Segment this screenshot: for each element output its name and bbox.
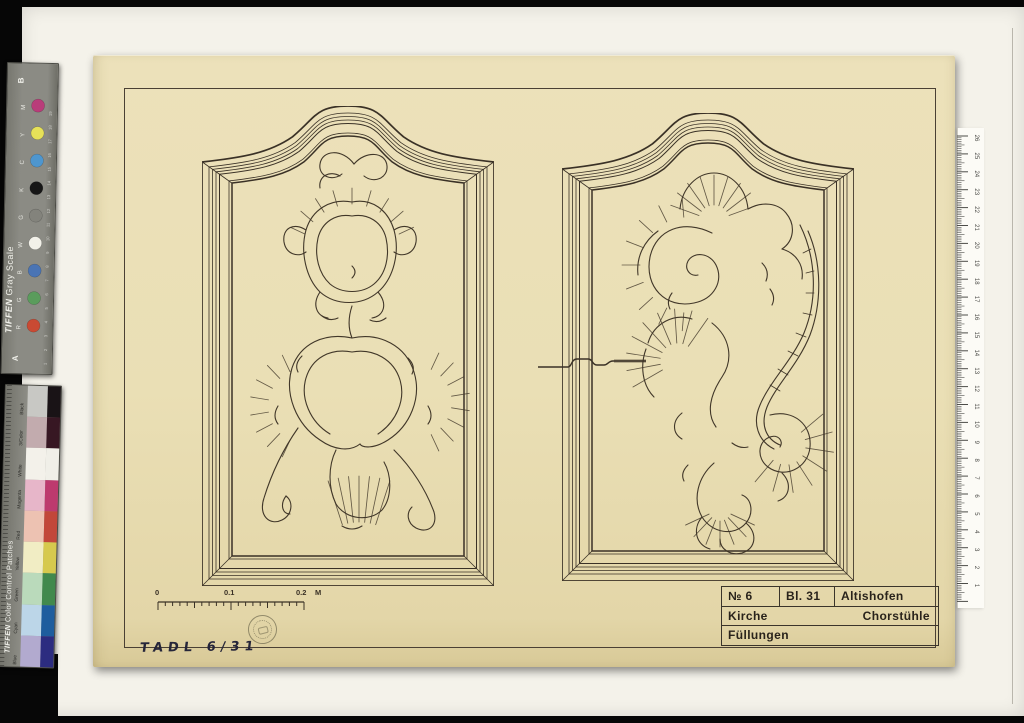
svg-text:6: 6 bbox=[973, 494, 979, 498]
molding-profile-mark bbox=[538, 351, 648, 375]
svg-text:18: 18 bbox=[48, 125, 53, 130]
svg-text:Y: Y bbox=[20, 133, 26, 137]
patch-pale bbox=[24, 479, 45, 511]
color-patch-row bbox=[24, 510, 58, 542]
svg-text:M: M bbox=[315, 588, 321, 597]
patch-label: 3/Color bbox=[19, 421, 25, 446]
svg-text:3: 3 bbox=[973, 548, 979, 552]
svg-text:G: G bbox=[17, 297, 23, 302]
svg-text:K: K bbox=[19, 188, 25, 192]
color-patch-row bbox=[27, 386, 61, 418]
svg-text:0.1: 0.1 bbox=[224, 588, 234, 597]
patch-label: Green bbox=[15, 577, 21, 602]
svg-text:1: 1 bbox=[43, 362, 48, 365]
color-patch-row bbox=[20, 635, 54, 667]
color-patches bbox=[20, 386, 61, 668]
drawing-sheet: 00.10.2M TADL 6/31 № 6 Bl. 31 Altishofen… bbox=[93, 55, 955, 667]
svg-text:23: 23 bbox=[973, 188, 979, 195]
svg-text:22: 22 bbox=[973, 206, 979, 213]
patch-strong bbox=[43, 542, 57, 574]
patch-label: Magenta bbox=[18, 483, 24, 508]
svg-text:C: C bbox=[20, 159, 26, 164]
gray-scale-strip: TIFFEN Gray Scale BMYCKGWBGRA12345678910… bbox=[0, 62, 59, 375]
patch-pale bbox=[27, 386, 48, 418]
color-control-strip: TIFFEN Color Control Patches Black3/Colo… bbox=[0, 384, 62, 668]
svg-text:25: 25 bbox=[973, 153, 979, 160]
svg-text:1: 1 bbox=[973, 584, 979, 588]
svg-text:6: 6 bbox=[44, 293, 49, 296]
place-cell: Altishofen bbox=[835, 587, 938, 606]
svg-text:14: 14 bbox=[973, 349, 979, 356]
svg-text:2: 2 bbox=[43, 348, 48, 351]
svg-text:8: 8 bbox=[973, 459, 979, 463]
handwritten-inventory-number: TADL 6/31 bbox=[139, 639, 260, 656]
patch-label: Blue bbox=[13, 639, 19, 664]
panel-frame-moldings bbox=[562, 113, 854, 581]
svg-text:26: 26 bbox=[973, 135, 979, 142]
svg-text:19: 19 bbox=[48, 111, 53, 116]
backing-fold-line bbox=[1012, 28, 1013, 704]
svg-text:17: 17 bbox=[973, 296, 979, 303]
svg-text:11: 11 bbox=[973, 403, 979, 410]
svg-text:20: 20 bbox=[973, 242, 979, 249]
svg-text:7: 7 bbox=[973, 476, 979, 480]
svg-text:8: 8 bbox=[45, 265, 50, 268]
svg-text:5: 5 bbox=[44, 306, 49, 309]
patch-strong bbox=[47, 386, 61, 418]
svg-text:11: 11 bbox=[46, 222, 51, 227]
color-strip-title: Color Control Patches bbox=[3, 540, 14, 624]
rococo-ornament bbox=[622, 173, 833, 554]
title-block-row-1: № 6 Bl. 31 Altishofen bbox=[722, 587, 938, 606]
patch-strong bbox=[44, 511, 58, 543]
patch-strong bbox=[45, 449, 59, 481]
color-patch-row bbox=[26, 417, 60, 449]
patch-strong bbox=[42, 573, 56, 605]
svg-text:13: 13 bbox=[46, 194, 51, 199]
gray-scale-dots: BMYCKGWBGRA12345678910111213141516171819 bbox=[1, 63, 57, 374]
cm-ruler: 1234567891011121314151617181920212223242… bbox=[957, 128, 984, 608]
svg-text:12: 12 bbox=[973, 385, 979, 392]
svg-text:12: 12 bbox=[46, 208, 51, 213]
patch-label: Cyan bbox=[14, 608, 20, 633]
color-patch-row bbox=[22, 573, 56, 605]
photo-stage: 00.10.2M TADL 6/31 № 6 Bl. 31 Altishofen… bbox=[0, 0, 1024, 723]
sheet-number-cell: № 6 bbox=[722, 587, 780, 606]
svg-text:B: B bbox=[18, 270, 24, 274]
left-panel-drawing bbox=[202, 106, 494, 586]
subject-label: Füllungen bbox=[728, 628, 789, 642]
patch-strong bbox=[44, 480, 58, 512]
svg-text:0: 0 bbox=[155, 588, 159, 597]
svg-text:0.2: 0.2 bbox=[296, 588, 306, 597]
patch-label: Black bbox=[20, 389, 26, 414]
title-block: № 6 Bl. 31 Altishofen Kirche Chorstühle … bbox=[721, 586, 939, 646]
svg-text:4: 4 bbox=[973, 530, 979, 534]
building-label: Kirche bbox=[728, 609, 768, 623]
svg-text:19: 19 bbox=[973, 260, 979, 267]
patch-strong bbox=[41, 605, 55, 637]
svg-text:B: B bbox=[17, 77, 26, 83]
patch-strong bbox=[40, 636, 54, 668]
patch-pale bbox=[21, 604, 42, 636]
patch-label: Yellow bbox=[16, 545, 22, 570]
svg-text:16: 16 bbox=[973, 314, 979, 321]
svg-text:10: 10 bbox=[973, 421, 979, 428]
rococo-ornament bbox=[251, 153, 470, 530]
patch-label: White bbox=[18, 452, 24, 477]
tiffen-logo: TIFFEN bbox=[2, 624, 12, 653]
patch-pale bbox=[26, 417, 47, 449]
title-block-row-2: Kirche Chorstühle bbox=[722, 606, 938, 626]
color-patch-row bbox=[21, 604, 55, 636]
svg-text:5: 5 bbox=[973, 512, 979, 516]
patch-pale bbox=[22, 573, 43, 605]
svg-text:9: 9 bbox=[45, 251, 50, 254]
svg-text:2: 2 bbox=[973, 566, 979, 570]
right-panel-drawing bbox=[562, 113, 854, 581]
svg-text:G: G bbox=[19, 215, 25, 220]
svg-text:W: W bbox=[18, 242, 24, 248]
patch-pale bbox=[24, 510, 45, 542]
svg-text:9: 9 bbox=[973, 441, 979, 445]
color-patch-row bbox=[25, 448, 59, 480]
patch-pale bbox=[23, 542, 44, 574]
svg-text:15: 15 bbox=[973, 332, 979, 339]
svg-text:24: 24 bbox=[973, 170, 979, 177]
patch-pale bbox=[20, 635, 41, 667]
patch-strong bbox=[46, 417, 60, 449]
svg-text:M: M bbox=[21, 105, 27, 110]
svg-text:A: A bbox=[11, 355, 20, 361]
svg-text:16: 16 bbox=[47, 152, 52, 157]
svg-text:3: 3 bbox=[43, 334, 48, 337]
svg-text:14: 14 bbox=[46, 180, 51, 185]
svg-text:21: 21 bbox=[973, 224, 979, 231]
patch-pale bbox=[25, 448, 46, 480]
object-label: Chorstühle bbox=[863, 609, 930, 623]
color-patch-row bbox=[23, 542, 57, 574]
panel-frame-moldings bbox=[202, 106, 494, 586]
svg-text:4: 4 bbox=[44, 320, 49, 323]
blatt-number-cell: Bl. 31 bbox=[780, 587, 835, 606]
scale-bar: 00.10.2M bbox=[152, 583, 324, 613]
svg-text:17: 17 bbox=[47, 138, 52, 143]
svg-text:18: 18 bbox=[973, 278, 979, 285]
title-block-row-3: Füllungen bbox=[722, 625, 938, 645]
svg-text:13: 13 bbox=[973, 367, 979, 374]
svg-text:R: R bbox=[16, 324, 22, 329]
patch-label: Red bbox=[17, 514, 23, 539]
svg-text:7: 7 bbox=[44, 279, 49, 282]
svg-text:15: 15 bbox=[47, 166, 52, 171]
svg-text:10: 10 bbox=[45, 236, 50, 241]
color-patch-row bbox=[24, 479, 58, 511]
